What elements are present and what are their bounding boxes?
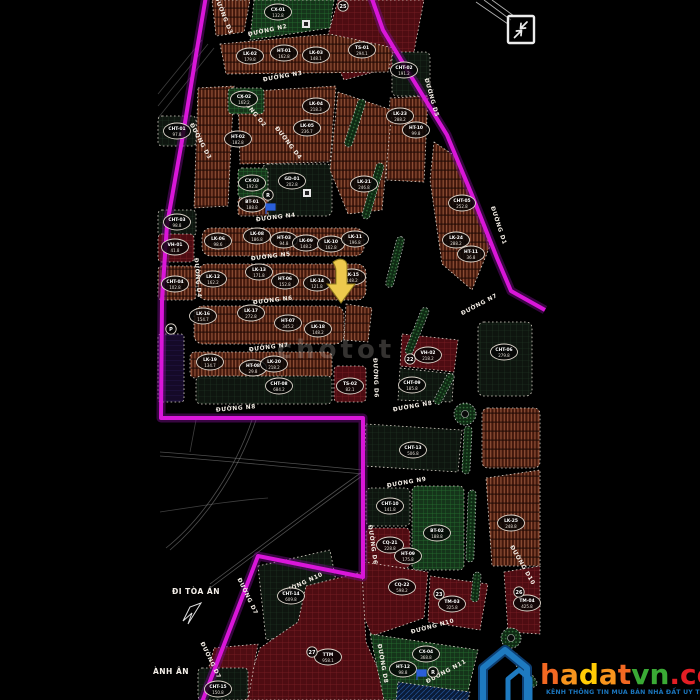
- svg-text:288.2: 288.2: [450, 241, 462, 246]
- plot-label: CHT-13506.8: [400, 442, 427, 458]
- svg-text:186.8: 186.8: [251, 237, 263, 242]
- svg-text:325.8: 325.8: [446, 605, 458, 610]
- plot-label: CHT-08684.2: [266, 378, 293, 394]
- plot-label: LK-14121.8: [304, 275, 331, 291]
- svg-text:218.2: 218.2: [422, 356, 434, 361]
- plot-label: LK-17272.8: [238, 305, 265, 321]
- plot-label: GD-01202.8: [279, 173, 306, 189]
- svg-text:218.2: 218.2: [268, 365, 280, 370]
- svg-text:41.8: 41.8: [171, 248, 180, 253]
- plot-label: CHT-02191.2: [391, 62, 418, 78]
- svg-text:228.8: 228.8: [384, 546, 396, 551]
- svg-text:162.2: 162.2: [238, 100, 250, 105]
- plot-label: LK-12162.2: [200, 271, 227, 287]
- svg-text:27: 27: [309, 650, 316, 656]
- plot-label: VH-0141.8: [162, 239, 189, 255]
- svg-text:162.8: 162.8: [278, 54, 290, 59]
- svg-text:R: R: [431, 670, 435, 676]
- plot-label: CX-04368.8: [413, 646, 440, 662]
- svg-text:248.8: 248.8: [505, 524, 517, 529]
- svg-text:132.8: 132.8: [272, 13, 284, 18]
- plot-label: LK-23288.2: [387, 108, 414, 124]
- svg-text:294.1: 294.1: [356, 51, 368, 56]
- svg-text:506.8: 506.8: [407, 451, 419, 456]
- planning-map-screenshot: ĐƯỜNG N2ĐƯỜNG N3ĐƯỜNG N4ĐƯỜNG N5ĐƯỜNG N6…: [0, 0, 700, 700]
- plot-label: LK-13171.8: [246, 264, 273, 280]
- plot-label: LK-09148.2: [293, 235, 320, 251]
- svg-text:196.8: 196.8: [349, 240, 361, 245]
- svg-text:202.8: 202.8: [286, 182, 298, 187]
- svg-text:94.8: 94.8: [280, 241, 289, 246]
- map-badge: 27: [307, 647, 317, 657]
- svg-text:609.8: 609.8: [285, 597, 297, 602]
- plot-label: LK-04218.3: [303, 98, 330, 114]
- svg-text:288.2: 288.2: [394, 117, 406, 122]
- roundabout-center: [462, 411, 469, 418]
- logo-brand-text: hadatvn.com.vn: [540, 658, 700, 691]
- svg-text:25: 25: [340, 4, 347, 10]
- plot-label: HT-1099.8: [403, 122, 430, 138]
- plot-label: LK-24288.2: [443, 232, 470, 248]
- plot-label: CX-01132.8: [265, 4, 292, 20]
- svg-text:252.8: 252.8: [456, 204, 468, 209]
- map-badge: 22: [405, 354, 415, 364]
- plot-label: CQ-22598.2: [389, 579, 416, 595]
- plot-label: LK-10162.8: [318, 236, 345, 252]
- svg-text:36.8: 36.8: [467, 255, 476, 260]
- svg-text:23: 23: [436, 592, 443, 598]
- svg-text:22: 22: [407, 357, 414, 363]
- plot-label: CHT-10141.8: [377, 498, 404, 514]
- svg-text:98.8: 98.8: [399, 670, 408, 675]
- svg-text:P: P: [169, 327, 173, 333]
- plot-label: CHT-05252.8: [449, 195, 476, 211]
- map-badge: 23: [434, 589, 444, 599]
- svg-text:162.8: 162.8: [325, 245, 337, 250]
- plot-label: HT-06152.8: [272, 273, 299, 289]
- svg-text:29.8: 29.8: [249, 369, 258, 374]
- svg-text:192.8: 192.8: [246, 184, 258, 189]
- plot-label: CX-02162.2: [231, 91, 258, 107]
- plot-label: HT-1136.8: [458, 246, 485, 262]
- court-direction-label: ĐI TÒA ÁN: [172, 587, 220, 596]
- plot-label: LK-03148.1: [303, 47, 330, 63]
- edge-area-label: ÀNH ÂN: [153, 667, 189, 676]
- svg-text:179.8: 179.8: [244, 57, 256, 62]
- svg-text:141.8: 141.8: [384, 507, 396, 512]
- svg-text:368.8: 368.8: [420, 655, 432, 660]
- svg-text:152.8: 152.8: [279, 282, 291, 287]
- svg-text:182.8: 182.8: [232, 140, 244, 145]
- svg-text:148.1: 148.1: [310, 56, 322, 61]
- plot-label: LK-02179.8: [237, 48, 264, 64]
- svg-text:99.8: 99.8: [412, 131, 421, 136]
- svg-text:684.2: 684.2: [273, 387, 285, 392]
- roundabout-center: [508, 635, 515, 642]
- map-badge: R: [263, 190, 273, 200]
- map-badge: 25: [338, 1, 348, 11]
- svg-text:191.2: 191.2: [398, 71, 410, 76]
- svg-text:598.2: 598.2: [396, 588, 408, 593]
- map-badge: 26: [514, 587, 524, 597]
- plot-label: CX-03192.8: [239, 175, 266, 191]
- plot-label: TM-03325.8: [439, 596, 466, 612]
- svg-text:121.8: 121.8: [311, 284, 323, 289]
- planning-map[interactable]: ĐƯỜNG N2ĐƯỜNG N3ĐƯỜNG N4ĐƯỜNG N5ĐƯỜNG N6…: [0, 0, 700, 700]
- svg-text:175.8: 175.8: [402, 557, 414, 562]
- plot-label: HT-01162.8: [271, 45, 298, 61]
- svg-text:279.8: 279.8: [498, 353, 510, 358]
- plot-label: LK-0698.6: [205, 233, 232, 249]
- svg-text:97.8: 97.8: [173, 132, 182, 137]
- svg-text:26: 26: [516, 590, 523, 596]
- map-badge: P: [166, 324, 176, 334]
- plot-label: CHT-0398.8: [164, 214, 191, 230]
- plot-label: HT-1298.8: [390, 661, 417, 677]
- svg-text:218.3: 218.3: [310, 107, 322, 112]
- plot-label: LK-21246.8: [351, 176, 378, 192]
- photo-watermark: chotot: [277, 335, 396, 365]
- svg-text:154.7: 154.7: [197, 317, 209, 322]
- plot-label: HT-09175.8: [395, 548, 422, 564]
- plot-label: LK-08186.8: [244, 228, 271, 244]
- svg-text:185.8: 185.8: [406, 386, 418, 391]
- svg-text:98.6: 98.6: [214, 242, 223, 247]
- plot-label: LK-05236.7: [294, 120, 321, 136]
- map-badge: R: [428, 667, 438, 677]
- svg-text:150.8: 150.8: [212, 690, 224, 695]
- svg-text:958.1: 958.1: [322, 658, 334, 663]
- plot-label: LK-16154.7: [190, 308, 217, 324]
- plot-label: VH-02218.2: [415, 347, 442, 363]
- plot-label: LK-19134.7: [197, 354, 224, 370]
- svg-text:425.8: 425.8: [521, 604, 533, 609]
- plot-block: [482, 408, 540, 468]
- plot-block: [196, 376, 332, 404]
- plot-label: CHT-09185.8: [399, 377, 426, 393]
- svg-text:148.2: 148.2: [346, 278, 358, 283]
- plot-label: CHT-04102.8: [162, 276, 189, 292]
- svg-text:272.8: 272.8: [245, 314, 257, 319]
- plot-label: CHT-14609.8: [278, 588, 305, 604]
- svg-text:134.7: 134.7: [204, 363, 216, 368]
- svg-text:171.8: 171.8: [253, 273, 265, 278]
- plot-label: TS-01294.1: [349, 42, 376, 58]
- svg-text:345.2: 345.2: [282, 324, 294, 329]
- plot-label: TTM958.1: [315, 649, 342, 665]
- svg-text:148.2: 148.2: [300, 244, 312, 249]
- svg-text:162.2: 162.2: [207, 280, 219, 285]
- svg-text:102.8: 102.8: [169, 285, 181, 290]
- plot-label: TS-0282.1: [337, 378, 364, 394]
- plot-label: CHT-06279.8: [491, 344, 518, 360]
- plot-label: HT-07345.2: [275, 315, 302, 331]
- svg-text:188.8: 188.8: [246, 205, 258, 210]
- plot-label: CHT-15150.8: [205, 681, 232, 697]
- plot-label: CHT-0197.8: [164, 123, 191, 139]
- plot-label: HT-02182.8: [225, 131, 252, 147]
- svg-text:82.1: 82.1: [346, 387, 355, 392]
- svg-text:188.8: 188.8: [431, 534, 443, 539]
- svg-text:R: R: [266, 193, 270, 199]
- plot-label: LK-25248.8: [498, 515, 525, 531]
- plot-label: LK-11196.8: [342, 231, 369, 247]
- svg-text:246.8: 246.8: [358, 185, 370, 190]
- svg-text:98.8: 98.8: [173, 223, 182, 228]
- svg-text:236.7: 236.7: [301, 129, 313, 134]
- plot-label: BT-01188.8: [239, 196, 266, 212]
- plot-label: BT-02188.8: [424, 525, 451, 541]
